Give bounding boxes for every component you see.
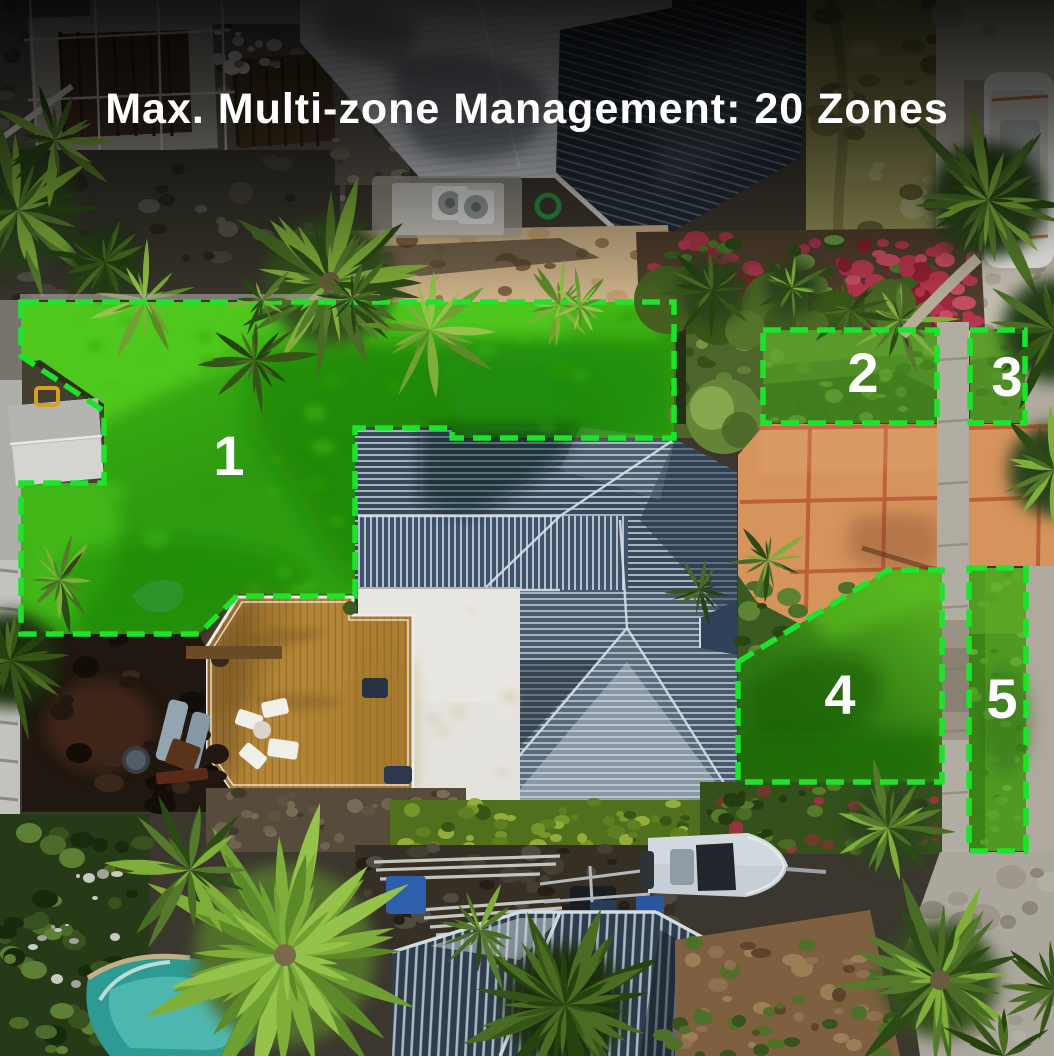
svg-text:Max. Multi-zone Management: 20: Max. Multi-zone Management: 20 Zones <box>105 85 949 133</box>
svg-text:2: 2 <box>847 341 878 404</box>
svg-text:4: 4 <box>824 663 855 726</box>
svg-text:1: 1 <box>213 424 244 487</box>
svg-text:5: 5 <box>986 667 1017 730</box>
svg-text:3: 3 <box>991 345 1022 408</box>
